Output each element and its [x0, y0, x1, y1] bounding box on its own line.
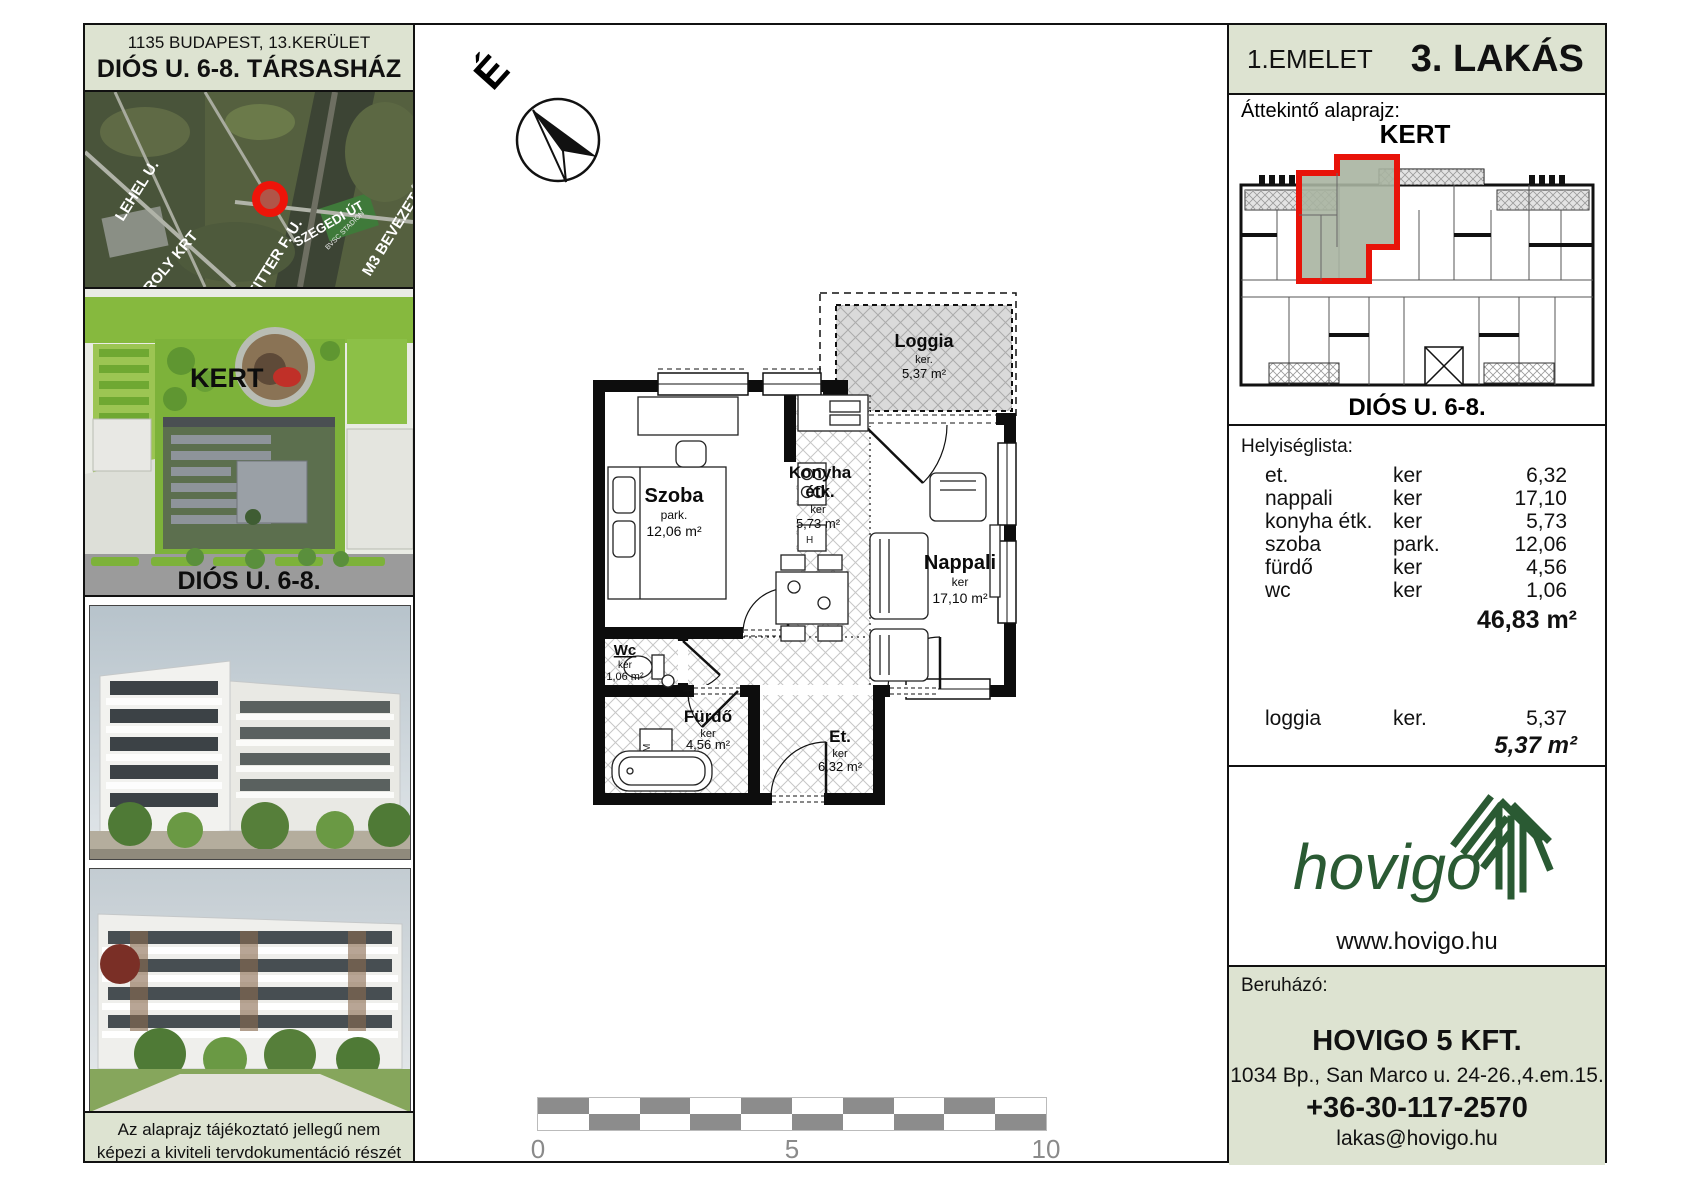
table-row: fürdő ker 4,56: [1265, 556, 1567, 579]
room-name: loggia: [1265, 707, 1393, 730]
hovigo-logo: hovigo: [1277, 781, 1557, 921]
building-render-2-graphic: [90, 869, 410, 1112]
room-finish: ker: [1393, 579, 1477, 602]
overview-street-label: DIÓS U. 6-8.: [1348, 393, 1485, 421]
north-label: É: [465, 46, 519, 98]
svg-text:étk.: étk.: [805, 482, 834, 501]
room-label-szoba: Szoba: [645, 485, 705, 507]
room-label-wc: Wc: [614, 642, 637, 659]
floorplan: M H Szoba park. 12,06 m² Konyha étk. ker…: [578, 285, 1018, 815]
svg-text:ker: ker: [810, 504, 826, 516]
svg-text:17,10 m²: 17,10 m²: [932, 590, 988, 606]
room-finish: ker: [1393, 556, 1477, 579]
room-label-furdo: Fürdő: [684, 707, 732, 726]
wc-sink: [662, 675, 674, 687]
loggia-row: loggia ker. 5,37: [1265, 707, 1567, 730]
total-area: 46,83 m²: [1265, 606, 1577, 635]
corridor-floor: [688, 637, 870, 685]
scale-label-5: 5: [775, 1134, 809, 1165]
room-name: fürdő: [1265, 556, 1393, 579]
north-compass: É: [430, 30, 630, 205]
room-area: 4,56: [1477, 556, 1567, 579]
developer-title: Beruházó:: [1241, 975, 1605, 997]
room-list-panel: Helyiséglista: et. ker 6,32 nappali ker …: [1229, 426, 1605, 767]
svg-text:12,06 m²: 12,06 m²: [646, 523, 702, 539]
project-address: 1135 BUDAPEST, 13.KERÜLET: [85, 33, 413, 53]
svg-text:ker.: ker.: [915, 354, 933, 366]
chair: [676, 441, 706, 467]
garden-render-graphic: KERT DIÓS U. 6-8.: [85, 289, 413, 595]
svg-text:5,37 m²: 5,37 m²: [902, 366, 947, 381]
disclaimer-line2: képezi a kiviteli tervdokumentáció részé…: [85, 1142, 413, 1165]
room-area: 6,32: [1477, 464, 1567, 487]
left-column: 1135 BUDAPEST, 13.KERÜLET DIÓS U. 6-8. T…: [85, 25, 415, 1161]
svg-text:ker: ker: [952, 575, 969, 589]
developer-email: lakas@hovigo.hu: [1229, 1127, 1605, 1151]
room-finish: ker.: [1393, 707, 1477, 730]
toilet-tank: [652, 655, 664, 679]
garden-street-label: DIÓS U. 6-8.: [177, 565, 320, 595]
svg-text:6,32 m²: 6,32 m²: [818, 759, 863, 774]
room-area: 12,06: [1477, 533, 1567, 556]
location-map: LEHEL U. RÓBERT KÁROLY KRT REITTER F. U.…: [85, 92, 413, 289]
room-name: wc: [1265, 579, 1393, 602]
svg-text:M: M: [642, 744, 653, 752]
room-name: konyha étk.: [1265, 510, 1393, 533]
room-area: 1,06: [1477, 579, 1567, 602]
sofa-2: [870, 629, 928, 681]
entry-floor: [763, 695, 873, 793]
room-finish: park.: [1393, 533, 1477, 556]
unit-label: 3. LAKÁS: [1411, 38, 1584, 81]
room-name: szoba: [1265, 533, 1393, 556]
developer-phone: +36-30-117-2570: [1229, 1092, 1605, 1125]
table-row: konyha étk. ker 5,73: [1265, 510, 1567, 533]
table-row: et. ker 6,32: [1265, 464, 1567, 487]
dining-table: [776, 572, 848, 624]
svg-text:1,06 m²: 1,06 m²: [606, 671, 644, 683]
scale-label-10: 10: [1029, 1134, 1063, 1165]
garden-label: KERT: [190, 363, 264, 393]
room-label-konyha: Konyha: [789, 463, 852, 482]
building-render-1: [89, 605, 411, 860]
room-finish: ker: [1393, 487, 1477, 510]
room-name: nappali: [1265, 487, 1393, 510]
overview-title: Áttekintő alaprajz:: [1241, 99, 1400, 122]
svg-text:4,56 m²: 4,56 m²: [686, 737, 731, 752]
logo-panel: hovigo www.hovigo.hu: [1229, 767, 1605, 967]
room-label-et: Et.: [829, 727, 851, 746]
building-render-1-graphic: [90, 606, 410, 859]
desk: [638, 397, 738, 435]
room-finish: ker: [1393, 464, 1477, 487]
room-area: 5,73: [1477, 510, 1567, 533]
disclaimer: Az alaprajz tájékoztató jellegű nem képe…: [85, 1111, 413, 1161]
room-area: 17,10: [1477, 487, 1567, 510]
location-marker: [256, 185, 284, 213]
overview-garden-label: KERT: [1380, 119, 1451, 149]
room-area: 5,37: [1477, 707, 1567, 730]
right-column: 1.EMELET 3. LAKÁS Áttekintő alaprajz: KE…: [1227, 25, 1605, 1161]
floor-label: 1.EMELET: [1247, 44, 1373, 75]
room-finish: ker: [1393, 510, 1477, 533]
developer-company: HOVIGO 5 KFT.: [1229, 1025, 1605, 1058]
room-label-loggia: Loggia: [895, 331, 955, 351]
disclaimer-line1: Az alaprajz tájékoztató jellegű nem: [85, 1119, 413, 1142]
loggia-total-area: 5,37 m²: [1265, 732, 1577, 760]
room-list-title: Helyiséglista:: [1241, 436, 1605, 458]
garden-render: KERT DIÓS U. 6-8.: [85, 289, 413, 597]
room-label-nappali: Nappali: [924, 552, 996, 574]
table-row: wc ker 1,06: [1265, 579, 1567, 602]
svg-text:H: H: [806, 535, 813, 546]
unit-header: 1.EMELET 3. LAKÁS: [1229, 25, 1605, 95]
scale-bar: [538, 1098, 1046, 1130]
developer-address: 1034 Bp., San Marco u. 24-26.,4.em.15.: [1229, 1064, 1605, 1088]
website: www.hovigo.hu: [1229, 928, 1605, 956]
scale-label-0: 0: [521, 1134, 555, 1165]
table-row: szoba park. 12,06: [1265, 533, 1567, 556]
svg-text:5,73 m²: 5,73 m²: [796, 516, 841, 531]
apartment-datasheet: 1135 BUDAPEST, 13.KERÜLET DIÓS U. 6-8. T…: [0, 0, 1683, 1190]
developer-panel: Beruházó: HOVIGO 5 KFT. 1034 Bp., San Ma…: [1229, 967, 1605, 1165]
table-row: nappali ker 17,10: [1265, 487, 1567, 510]
satellite-map-graphic: LEHEL U. RÓBERT KÁROLY KRT REITTER F. U.…: [85, 92, 413, 287]
project-name: DIÓS U. 6-8. TÁRSASHÁZ: [85, 55, 413, 84]
room-list-table: et. ker 6,32 nappali ker 17,10 konyha ét…: [1265, 464, 1567, 602]
sofa: [870, 533, 928, 619]
room-name: et.: [1265, 464, 1393, 487]
building-render-2: [89, 868, 411, 1113]
overview-panel: Áttekintő alaprajz: KERT: [1229, 95, 1605, 426]
svg-text:park.: park.: [661, 508, 688, 522]
project-header: 1135 BUDAPEST, 13.KERÜLET DIÓS U. 6-8. T…: [85, 25, 413, 92]
svg-text:ker: ker: [618, 660, 633, 671]
overview-plan-graphic: Áttekintő alaprajz: KERT: [1229, 95, 1605, 424]
armchair: [930, 473, 986, 521]
